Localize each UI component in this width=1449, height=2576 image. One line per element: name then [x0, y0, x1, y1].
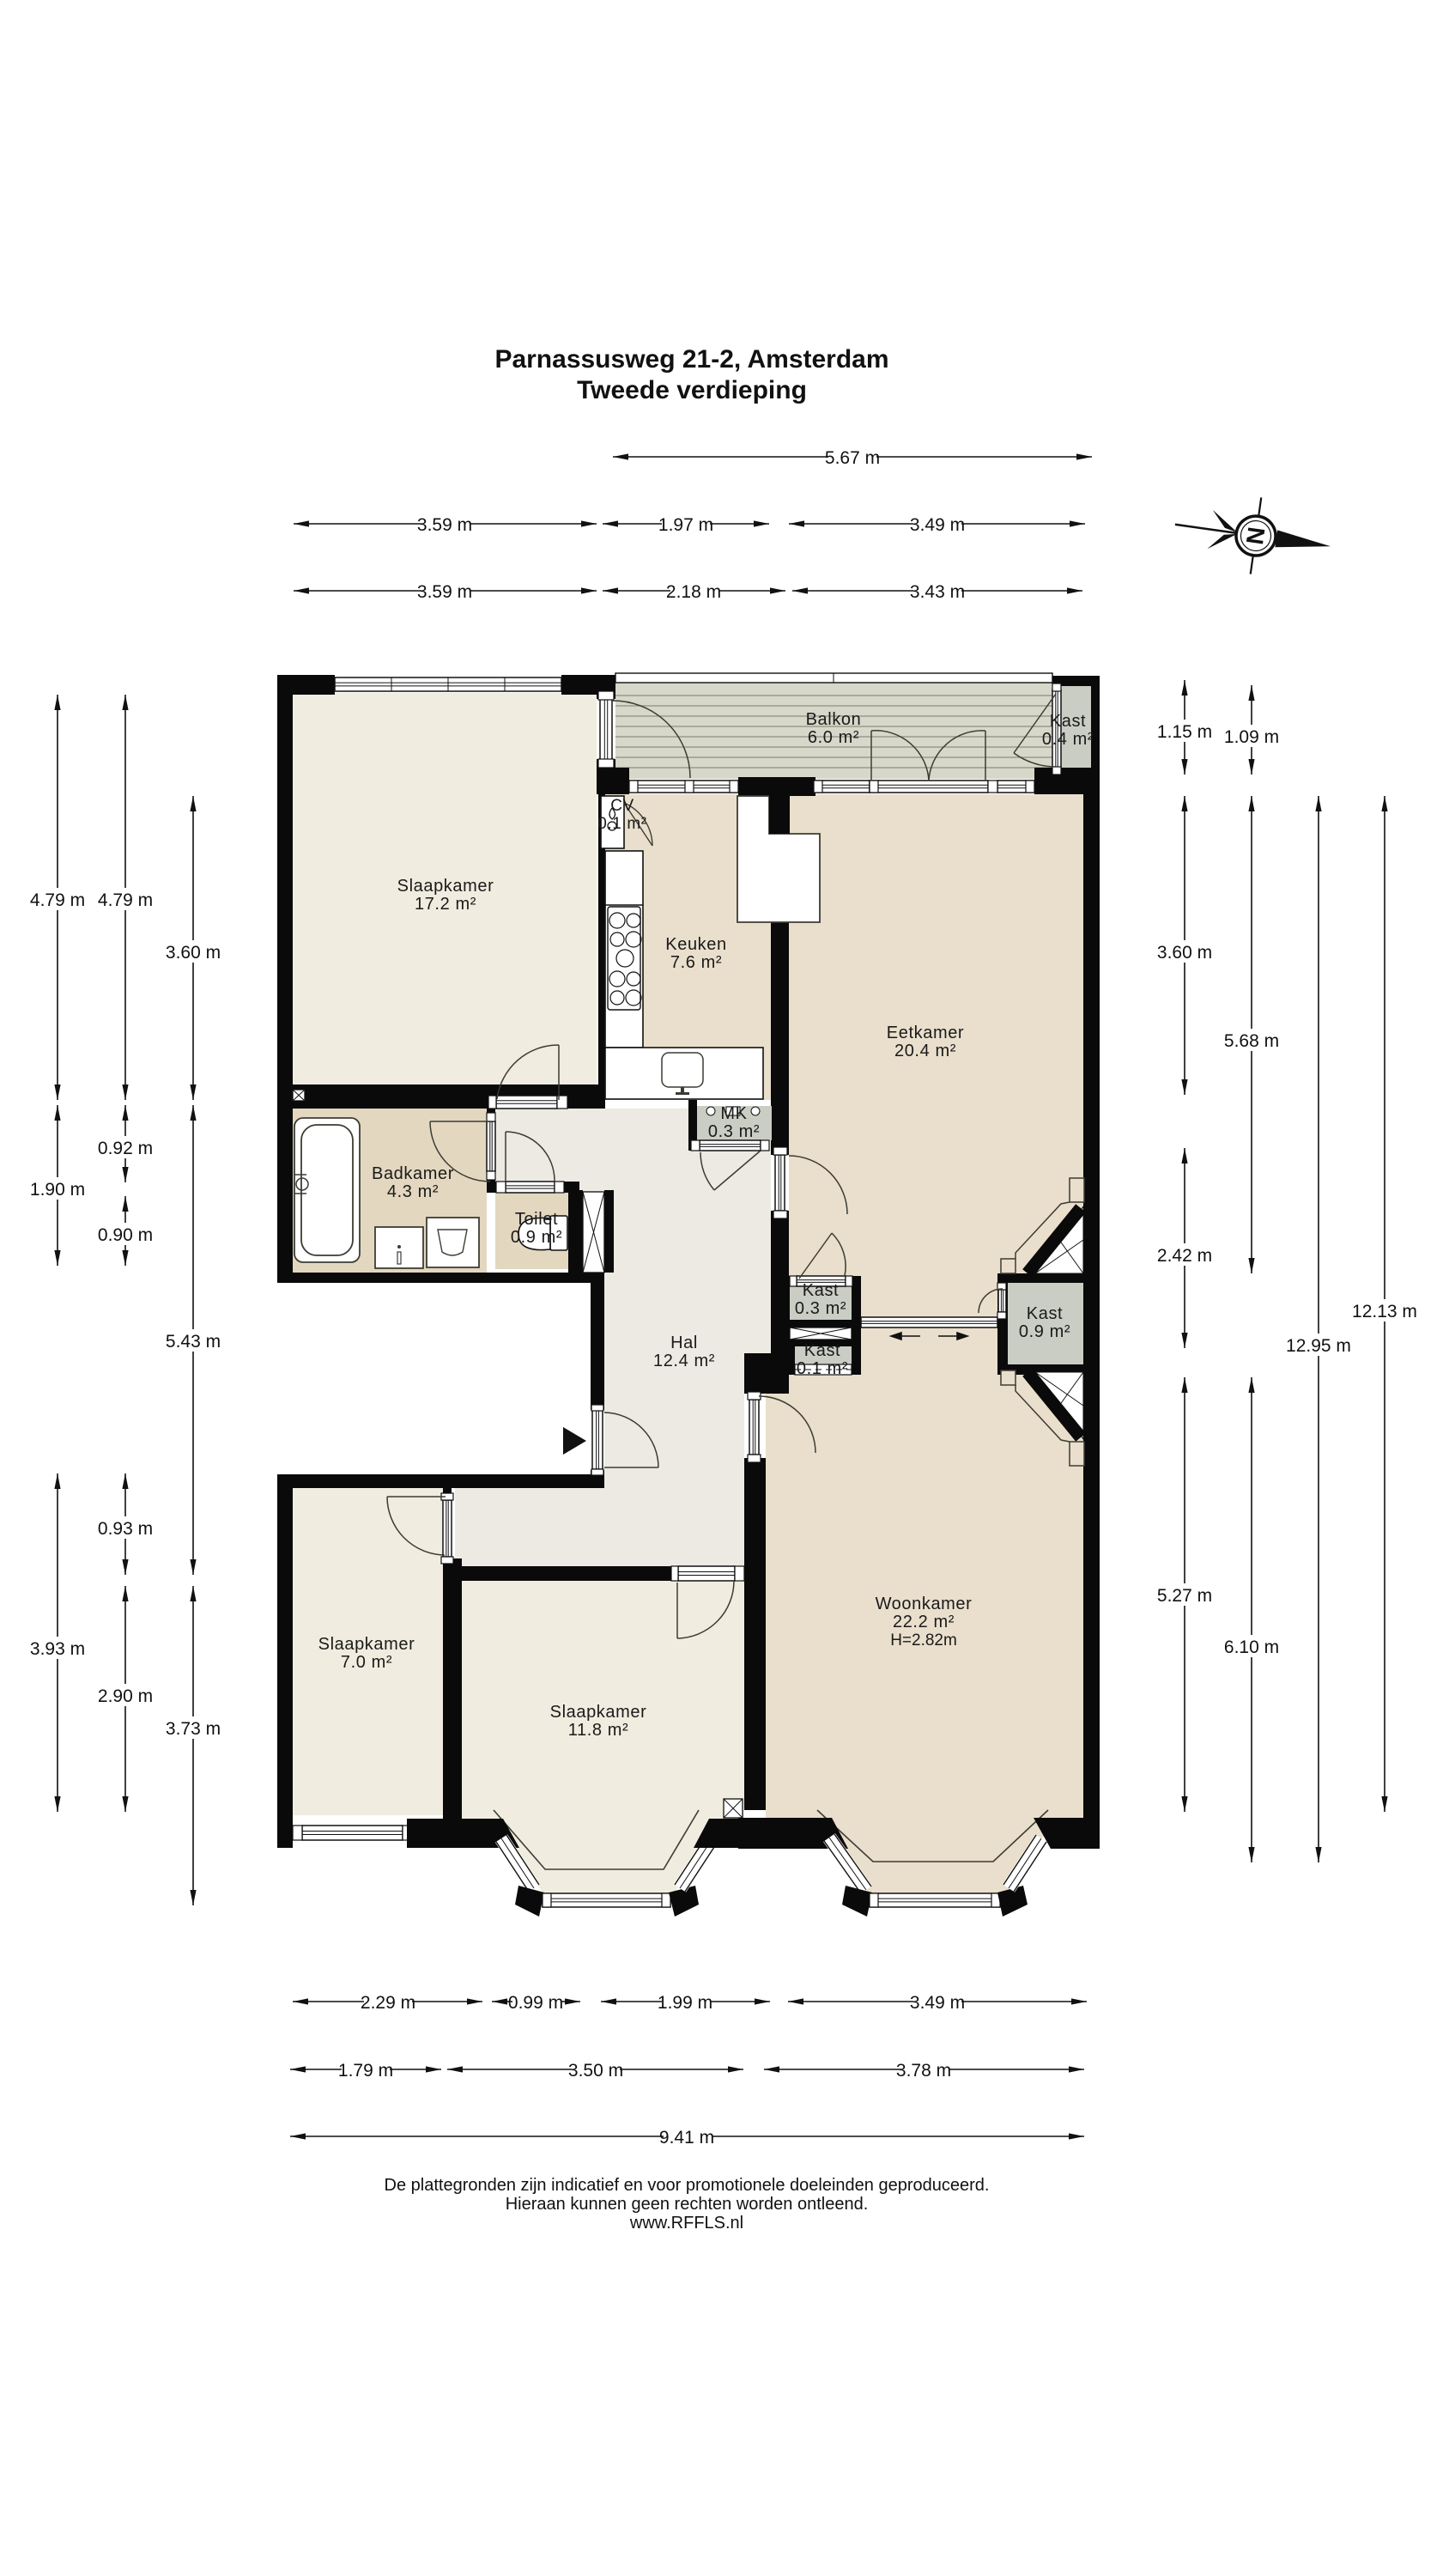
svg-text:2.18 m: 2.18 m	[666, 582, 721, 602]
svg-text:0.1 m²: 0.1 m²	[797, 1359, 848, 1378]
svg-text:MK: MK	[720, 1104, 747, 1123]
svg-text:Kast: Kast	[803, 1281, 839, 1300]
svg-text:Slaapkamer: Slaapkamer	[397, 877, 494, 896]
svg-text:0.1 m²: 0.1 m²	[597, 815, 646, 833]
svg-text:3.50 m: 3.50 m	[568, 2061, 623, 2081]
svg-text:1.15 m: 1.15 m	[1157, 722, 1212, 742]
svg-text:7.0 m²: 7.0 m²	[341, 1653, 392, 1672]
svg-text:www.RFFLS.nl: www.RFFLS.nl	[629, 2214, 743, 2233]
svg-text:H=2.82m: H=2.82m	[890, 1631, 957, 1649]
svg-text:Hal: Hal	[670, 1334, 698, 1352]
svg-text:0.90 m: 0.90 m	[98, 1225, 153, 1245]
svg-text:3.43 m: 3.43 m	[910, 582, 965, 602]
svg-text:3.60 m: 3.60 m	[166, 943, 221, 963]
svg-text:1.97 m: 1.97 m	[658, 515, 713, 535]
svg-text:0.9 m²: 0.9 m²	[1019, 1322, 1070, 1341]
svg-text:12.13 m: 12.13 m	[1352, 1302, 1417, 1321]
svg-text:1.79 m: 1.79 m	[338, 2061, 393, 2081]
svg-text:0.92 m: 0.92 m	[98, 1139, 153, 1158]
svg-text:De plattegronden zijn indicati: De plattegronden zijn indicatief en voor…	[385, 2176, 990, 2195]
svg-text:Balkon: Balkon	[806, 710, 862, 729]
svg-text:17.2 m²: 17.2 m²	[415, 895, 476, 914]
svg-text:N: N	[1241, 526, 1270, 546]
svg-text:3.60 m: 3.60 m	[1157, 943, 1212, 963]
svg-text:4.79 m: 4.79 m	[30, 890, 85, 910]
svg-text:1.99 m: 1.99 m	[658, 1993, 712, 2013]
svg-text:Kast: Kast	[804, 1341, 840, 1360]
svg-text:7.6 m²: 7.6 m²	[670, 953, 722, 972]
svg-text:4.79 m: 4.79 m	[98, 890, 153, 910]
svg-text:9.41 m: 9.41 m	[659, 2128, 714, 2148]
svg-text:Toilet: Toilet	[515, 1210, 558, 1229]
svg-text:2.90 m: 2.90 m	[98, 1686, 153, 1706]
svg-text:Slaapkamer: Slaapkamer	[318, 1635, 415, 1654]
svg-text:Tweede verdieping: Tweede verdieping	[577, 376, 807, 404]
svg-text:3.93 m: 3.93 m	[30, 1639, 85, 1659]
svg-text:Keuken: Keuken	[665, 935, 726, 954]
svg-text:5.67 m: 5.67 m	[825, 448, 880, 468]
svg-text:0.3 m²: 0.3 m²	[795, 1299, 846, 1318]
svg-text:3.78 m: 3.78 m	[896, 2061, 951, 2081]
svg-text:12.4 m²: 12.4 m²	[653, 1352, 715, 1370]
svg-text:Badkamer: Badkamer	[372, 1164, 454, 1183]
svg-text:CV: CV	[610, 797, 634, 815]
svg-text:5.27 m: 5.27 m	[1157, 1586, 1212, 1606]
svg-text:Hieraan kunnen geen rechten wo: Hieraan kunnen geen rechten worden ontle…	[506, 2195, 869, 2214]
svg-text:0.3 m²: 0.3 m²	[708, 1122, 760, 1141]
svg-text:0.93 m: 0.93 m	[98, 1519, 153, 1539]
svg-text:6.10 m: 6.10 m	[1224, 1637, 1279, 1657]
svg-text:2.42 m: 2.42 m	[1157, 1246, 1212, 1266]
svg-text:20.4 m²: 20.4 m²	[894, 1042, 956, 1060]
svg-text:3.49 m: 3.49 m	[910, 1993, 965, 2013]
svg-text:0.9 m²: 0.9 m²	[511, 1228, 562, 1247]
svg-text:Kast: Kast	[1050, 712, 1086, 731]
svg-text:0.99 m: 0.99 m	[508, 1993, 563, 2013]
svg-text:2.29 m: 2.29 m	[361, 1993, 415, 2013]
svg-text:12.95 m: 12.95 m	[1286, 1336, 1351, 1356]
svg-text:3.59 m: 3.59 m	[417, 582, 472, 602]
svg-text:6.0 m²: 6.0 m²	[808, 728, 859, 747]
svg-text:5.43 m: 5.43 m	[166, 1332, 221, 1352]
svg-text:Slaapkamer: Slaapkamer	[550, 1703, 647, 1722]
svg-text:11.8 m²: 11.8 m²	[568, 1721, 629, 1740]
svg-text:3.59 m: 3.59 m	[417, 515, 472, 535]
svg-text:4.3 m²: 4.3 m²	[387, 1182, 439, 1201]
svg-text:1.90 m: 1.90 m	[30, 1180, 85, 1200]
svg-text:3.73 m: 3.73 m	[166, 1719, 221, 1739]
svg-text:0.4 m²: 0.4 m²	[1042, 730, 1094, 749]
svg-text:Kast: Kast	[1027, 1304, 1063, 1323]
svg-text:22.2 m²: 22.2 m²	[893, 1613, 955, 1631]
svg-text:Woonkamer: Woonkamer	[876, 1595, 973, 1613]
svg-text:Parnassusweg 21-2, Amsterdam: Parnassusweg 21-2, Amsterdam	[494, 345, 888, 374]
svg-text:1.09 m: 1.09 m	[1224, 727, 1279, 747]
svg-text:Eetkamer: Eetkamer	[887, 1024, 964, 1042]
svg-text:5.68 m: 5.68 m	[1224, 1031, 1279, 1051]
svg-text:3.49 m: 3.49 m	[910, 515, 965, 535]
